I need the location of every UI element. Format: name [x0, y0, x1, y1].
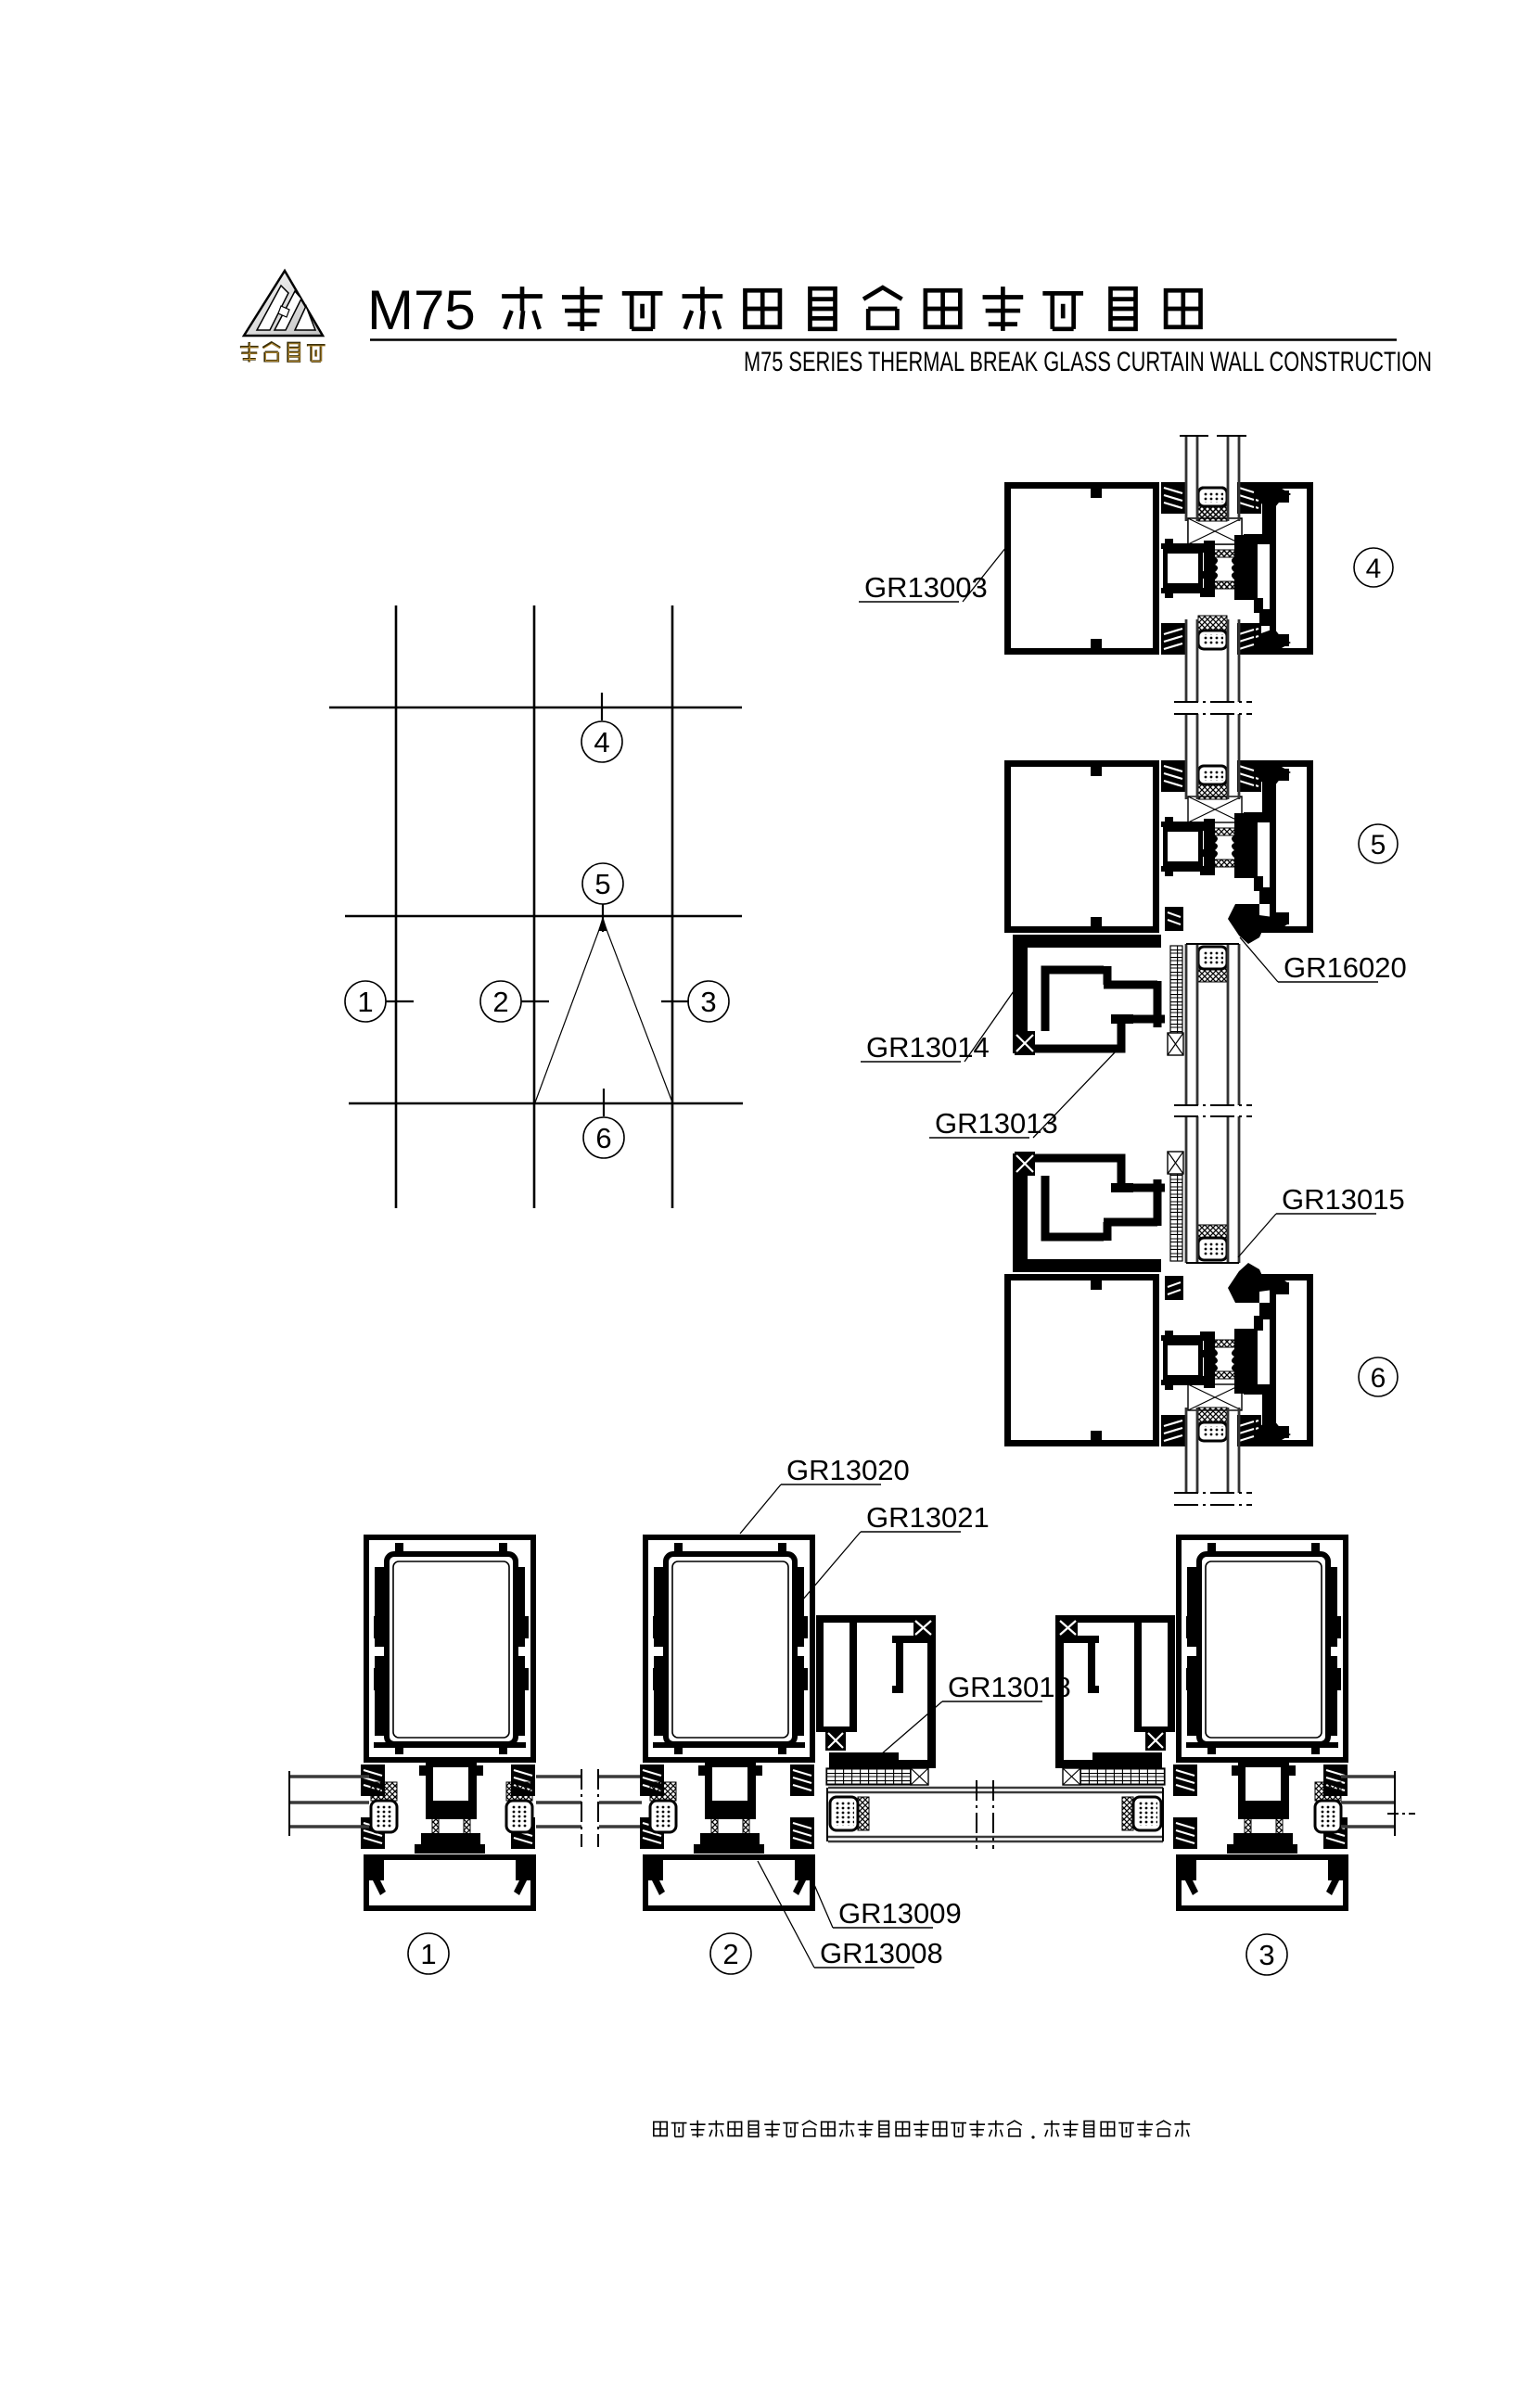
svg-text:3: 3 — [1258, 1939, 1274, 1971]
svg-text:M75 SERIES THERMAL BREAK GLASS: M75 SERIES THERMAL BREAK GLASS CURTAIN W… — [744, 347, 1432, 377]
svg-text:GR13009: GR13009 — [838, 1897, 962, 1930]
svg-text:GR13018: GR13018 — [948, 1671, 1071, 1703]
svg-text:1: 1 — [357, 986, 373, 1018]
svg-text:1: 1 — [420, 1938, 436, 1970]
svg-text:GR13003: GR13003 — [864, 571, 988, 604]
svg-text:GR13014: GR13014 — [866, 1031, 990, 1064]
svg-text:GR16020: GR16020 — [1284, 951, 1407, 984]
svg-text:GR13021: GR13021 — [866, 1501, 990, 1534]
svg-text:M75: M75 — [367, 279, 476, 341]
svg-text:2: 2 — [722, 1938, 738, 1970]
svg-text:4: 4 — [1366, 554, 1382, 584]
svg-text:6: 6 — [1371, 1363, 1386, 1394]
svg-text:2: 2 — [492, 986, 508, 1018]
svg-text:GR13015: GR13015 — [1282, 1183, 1405, 1216]
svg-text:5: 5 — [594, 868, 610, 900]
svg-text:6: 6 — [595, 1122, 611, 1154]
svg-text:GR13008: GR13008 — [820, 1937, 943, 1969]
svg-text:4: 4 — [594, 726, 609, 758]
svg-text:GR13013: GR13013 — [935, 1107, 1058, 1140]
svg-text:5: 5 — [1371, 830, 1386, 860]
svg-text:GR13020: GR13020 — [786, 1454, 910, 1486]
svg-text:3: 3 — [700, 986, 716, 1018]
